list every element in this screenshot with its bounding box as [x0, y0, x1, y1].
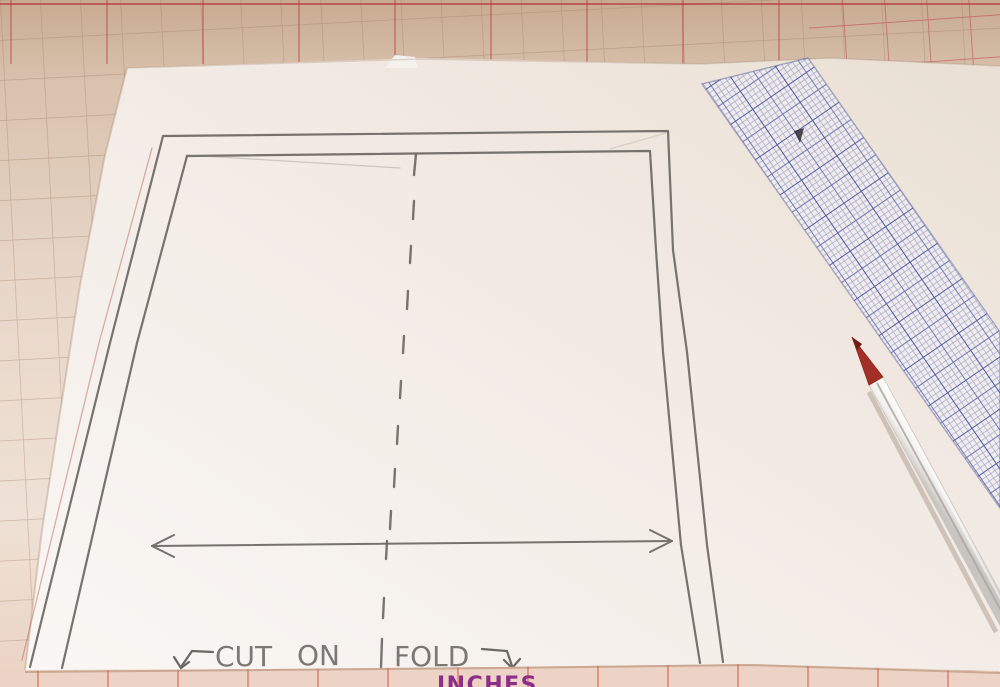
- fold-dash: [400, 381, 401, 398]
- scene-canvas: CUT ON FOLD INCHES: [0, 0, 1000, 687]
- fold-dash: [381, 639, 382, 667]
- fold-dash: [390, 511, 391, 529]
- fold-dash: [403, 336, 404, 353]
- fold-dash: [383, 598, 384, 618]
- on-label: ON: [297, 639, 340, 672]
- fold-dash: [394, 469, 395, 487]
- fold-dash: [397, 426, 398, 444]
- photo-sewing-pattern-scene: CUT ON FOLD INCHES: [0, 0, 1000, 687]
- cut-label: CUT: [215, 640, 273, 673]
- fold-dash: [410, 246, 411, 263]
- fold-dash: [413, 201, 414, 219]
- fold-dash: [407, 291, 408, 309]
- inches-label: INCHES: [437, 673, 538, 687]
